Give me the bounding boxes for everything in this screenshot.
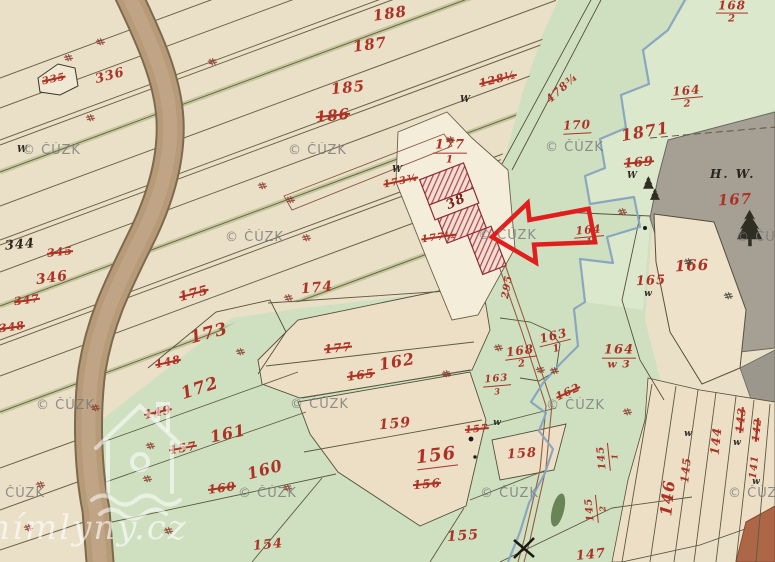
ink-dot <box>473 455 476 458</box>
ink-dot <box>469 437 474 442</box>
site-watermark-text: anímlyny.cz <box>0 508 188 548</box>
map-canvas <box>0 0 775 562</box>
hw-forest-label: H. W. <box>710 167 755 181</box>
ink-dot <box>643 226 647 230</box>
map-image[interactable]: 188187185186128½478¾17713363353443453463… <box>0 0 775 562</box>
